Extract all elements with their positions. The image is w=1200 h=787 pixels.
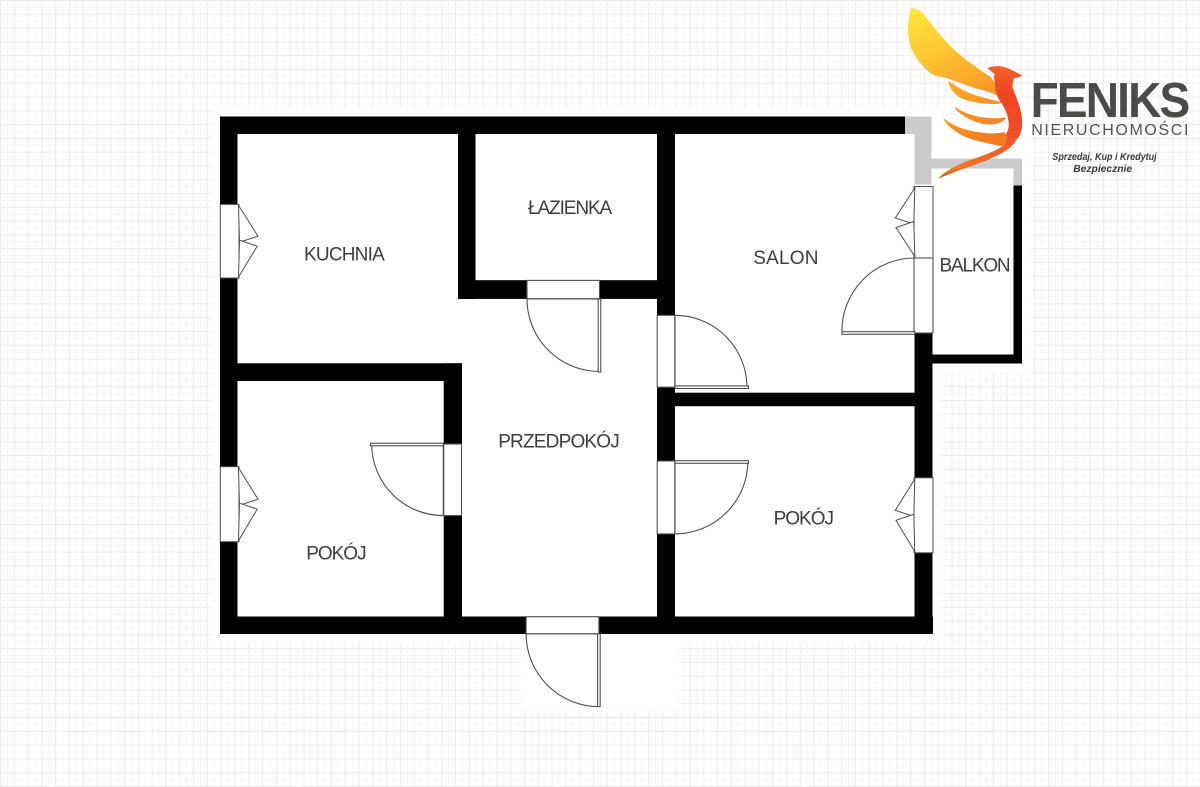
svg-text:Bezpiecznie: Bezpiecznie bbox=[1073, 164, 1132, 175]
svg-text:PRZEDPOKÓJ: PRZEDPOKÓJ bbox=[498, 431, 619, 453]
svg-text:NIERUCHOMOŚCI: NIERUCHOMOŚCI bbox=[1031, 120, 1188, 139]
svg-text:POKÓJ: POKÓJ bbox=[774, 508, 834, 530]
svg-text:KUCHNIA: KUCHNIA bbox=[304, 245, 385, 266]
svg-text:FENIKS: FENIKS bbox=[1031, 73, 1190, 128]
svg-text:Sprzedaj, Kup i Kredytuj: Sprzedaj, Kup i Kredytuj bbox=[1052, 152, 1157, 163]
svg-text:SALON: SALON bbox=[753, 248, 818, 269]
svg-text:BALKON: BALKON bbox=[940, 256, 1010, 277]
svg-text:ŁAZIENKA: ŁAZIENKA bbox=[528, 198, 612, 219]
svg-text:POKÓJ: POKÓJ bbox=[306, 543, 366, 565]
